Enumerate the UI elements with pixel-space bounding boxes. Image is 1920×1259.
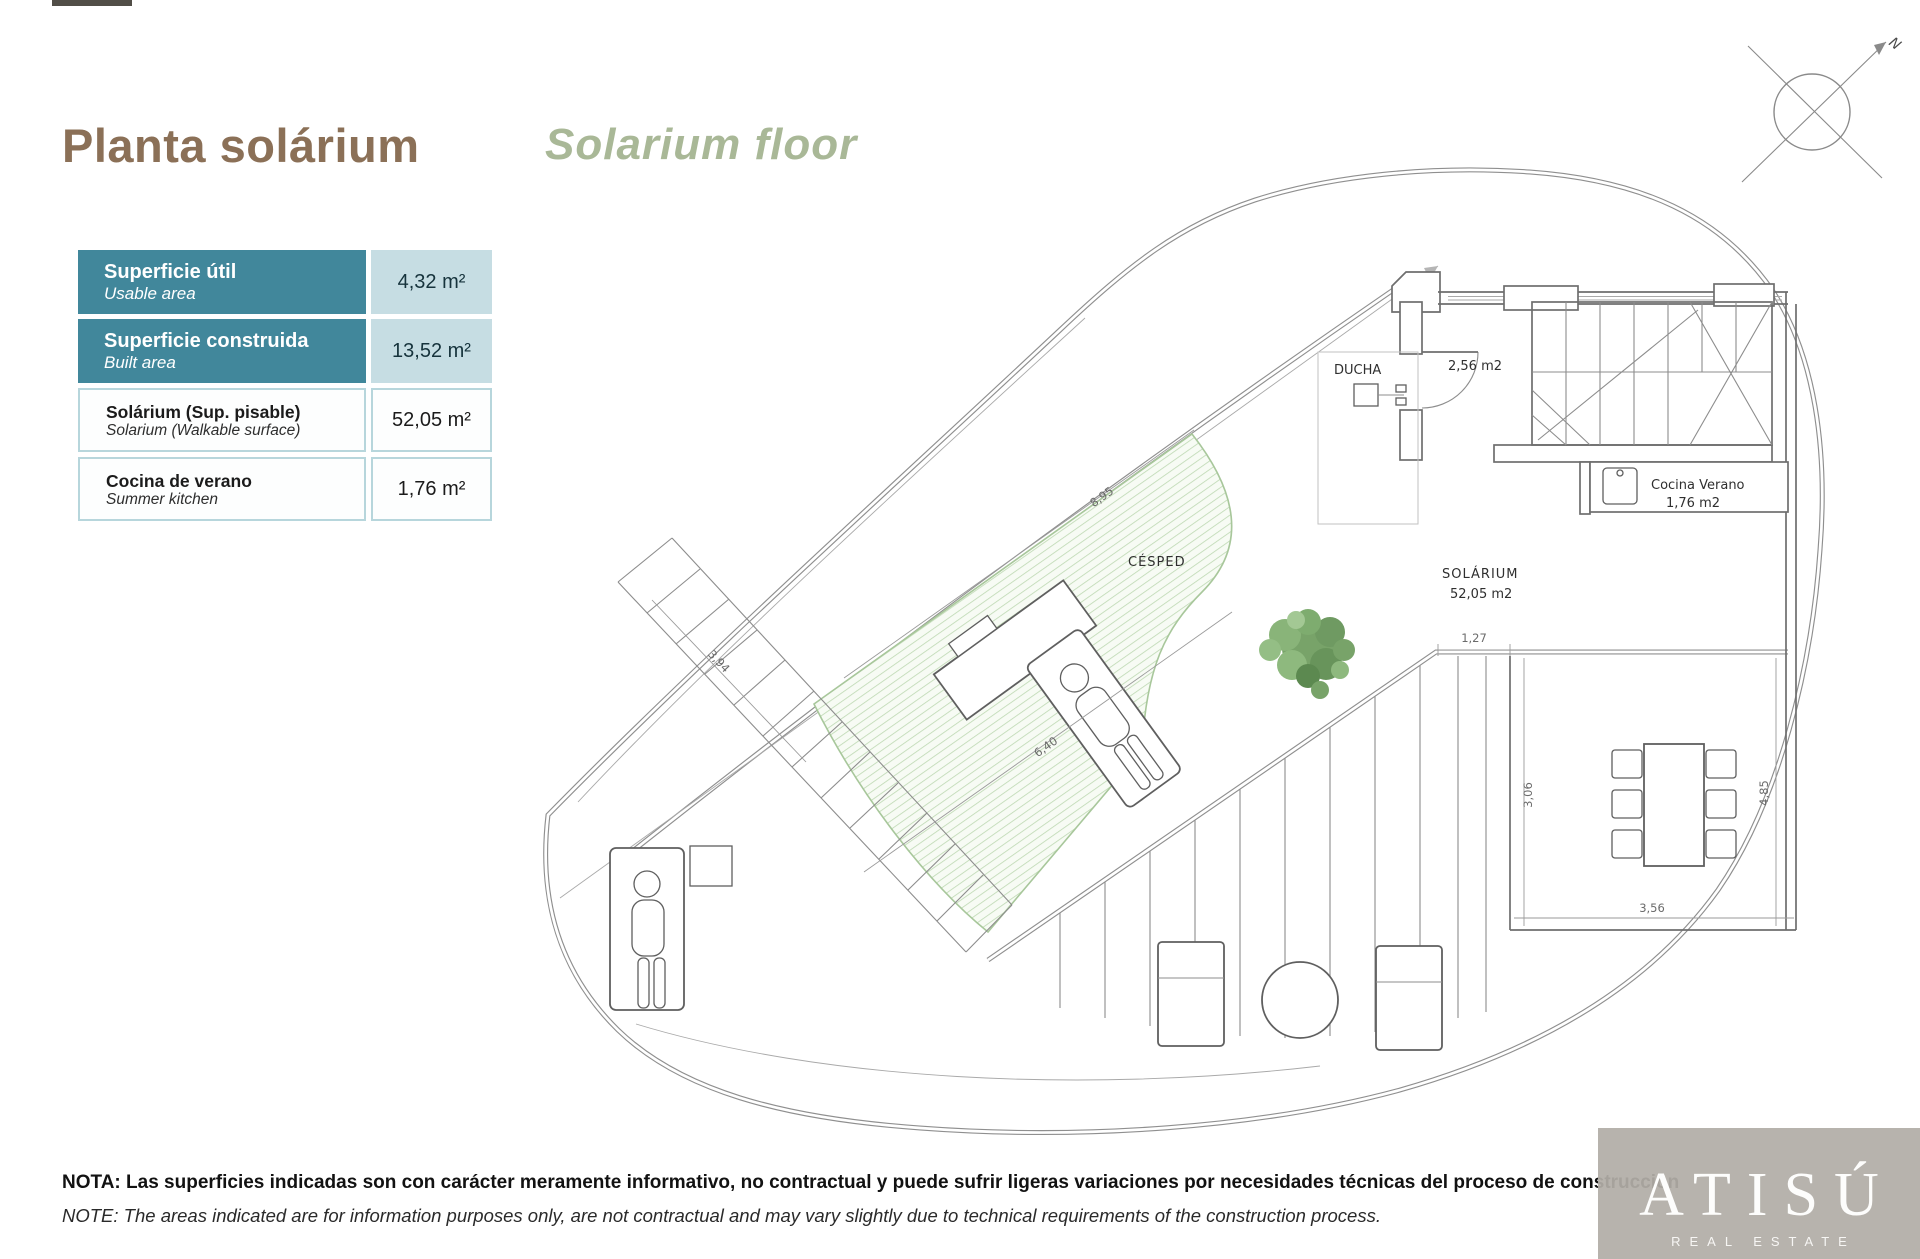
brand-watermark: ATISÚ REAL ESTATE [1598,1128,1920,1259]
solarium-floor-plan-page: Planta solárium Solarium floor Superfici… [0,0,1920,1259]
shower-label: DUCHA [1334,363,1381,378]
floor-plan: 2,56 m2 DUCHA Cocina Verano 1,76 m2 [0,0,1920,1259]
dim-3-56: 3,56 [1639,901,1665,915]
brand-name: ATISÚ [1639,1164,1895,1226]
north-compass-icon: N [1742,35,1904,182]
solarium-label-line1: SOLÁRIUM [1442,566,1519,582]
staircase [1532,302,1772,445]
side-table [690,846,732,886]
note-spanish: NOTA: Las superficies indicadas son con … [62,1172,1762,1194]
dim-3-94: 3,94 [705,647,733,675]
summer-kitchen: Cocina Verano 1,76 m2 [1580,462,1788,514]
tree-icon [1259,609,1355,699]
room-area-label: 2,56 m2 [1448,359,1502,374]
deck-chair [1158,942,1224,1046]
room-2-56: 2,56 m2 [1422,352,1502,408]
note-english: NOTE: The areas indicated are for inform… [62,1205,1682,1227]
hot-tub [1262,962,1338,1038]
solarium-label-line2: 52,05 m2 [1450,587,1512,602]
kitchen-label-line1: Cocina Verano [1651,478,1745,493]
dining-set [1612,744,1736,866]
dim-1-27: 1,27 [1461,631,1487,645]
shower-symbol [1354,384,1406,406]
brand-tagline: REAL ESTATE [1671,1234,1856,1249]
dim-4-85: 4,85 [1757,780,1771,806]
deck-chair [1376,946,1442,1050]
grass-label: CÉSPED [1128,554,1186,570]
hot-tub-area [1158,942,1442,1050]
dim-3-06: 3,06 [1521,782,1535,808]
wall-pillar [1504,286,1578,310]
kitchen-label-line2: 1,76 m2 [1666,496,1720,511]
person-head [634,871,660,897]
lower-lounger-person [610,846,732,1010]
north-label: N [1886,35,1905,54]
